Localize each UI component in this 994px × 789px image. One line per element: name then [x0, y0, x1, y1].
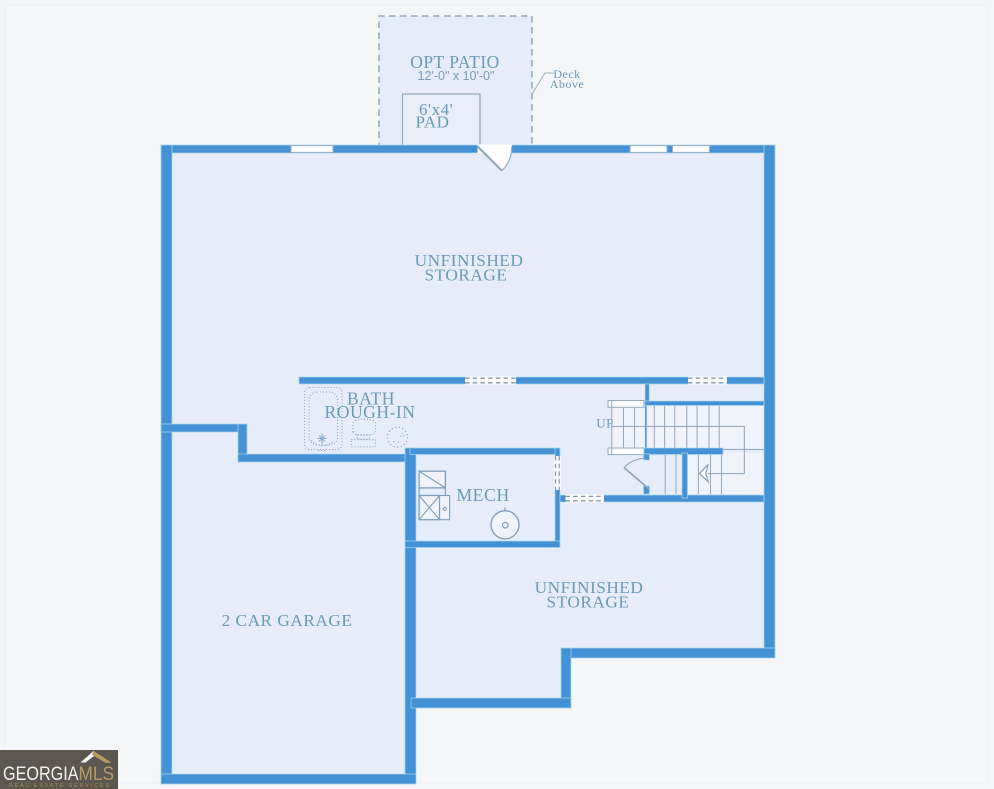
svg-text:PAD: PAD [416, 113, 450, 132]
svg-text:UP: UP [596, 416, 614, 431]
svg-text:ROUGH-IN: ROUGH-IN [325, 402, 416, 422]
svg-text:STORAGE: STORAGE [425, 266, 508, 285]
svg-text:2 CAR GARAGE: 2 CAR GARAGE [222, 611, 353, 630]
svg-text:STORAGE: STORAGE [547, 593, 630, 612]
svg-text:MECH: MECH [456, 485, 509, 505]
svg-text:Above: Above [550, 77, 585, 91]
svg-text:12'-0" x 10'-0": 12'-0" x 10'-0" [418, 69, 495, 83]
svg-text:GEORGIA: GEORGIA [3, 763, 79, 785]
svg-text:MLS: MLS [79, 763, 115, 785]
